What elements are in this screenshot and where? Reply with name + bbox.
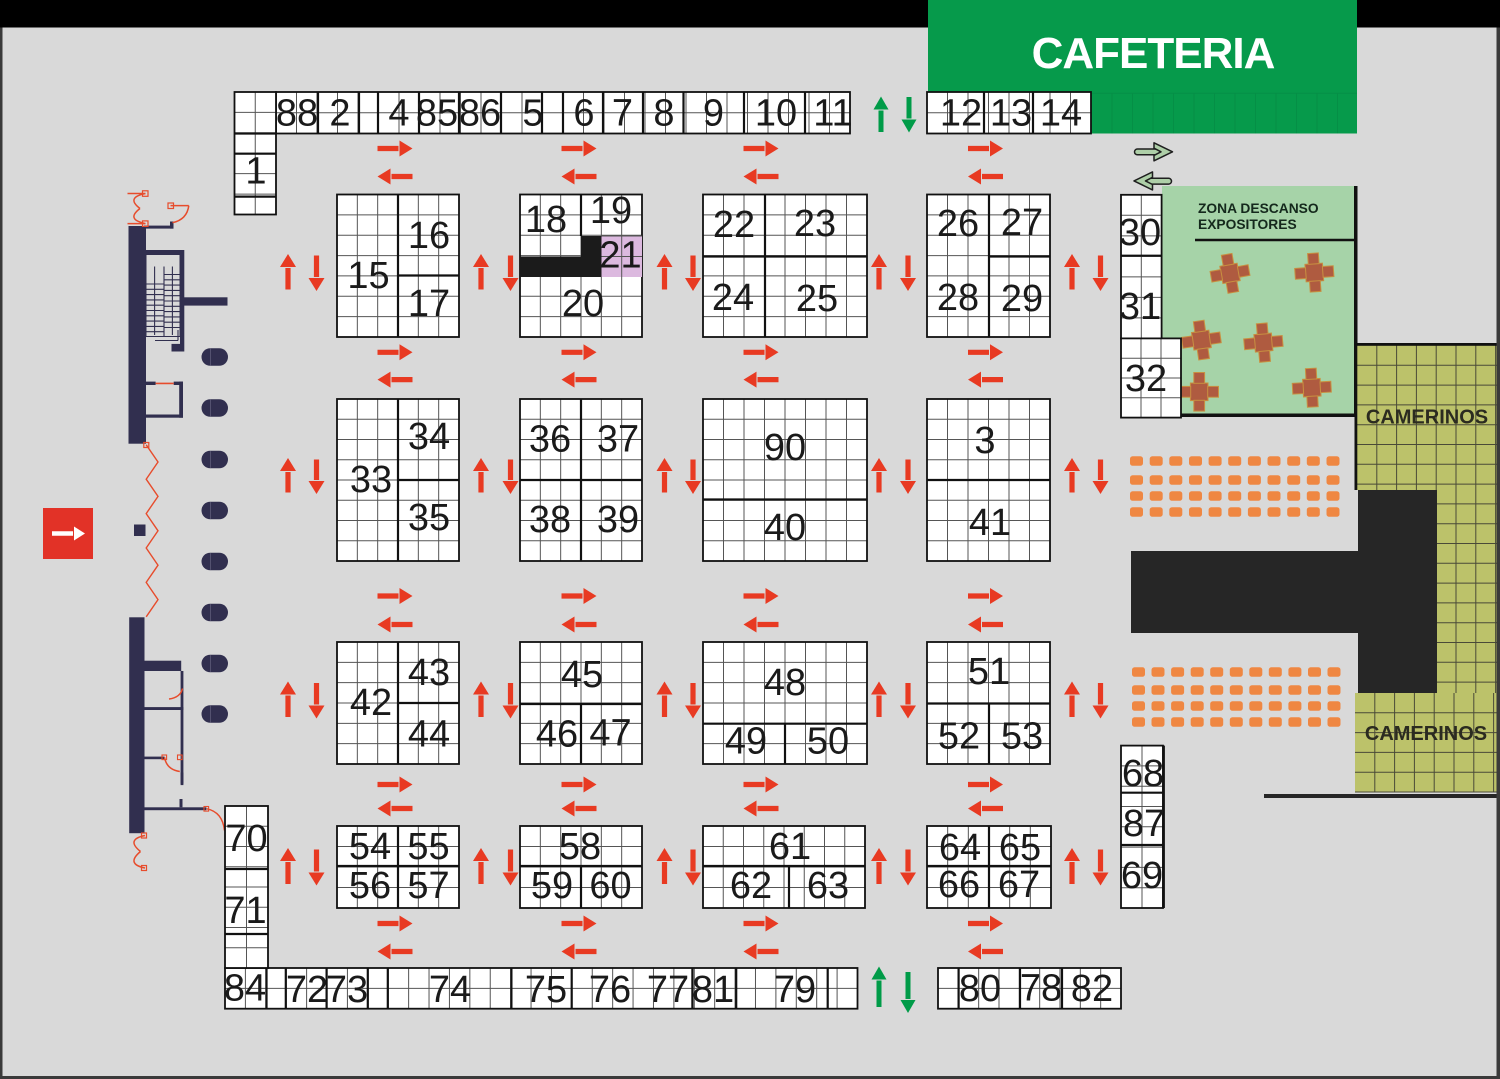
svg-text:EXPOSITORES: EXPOSITORES <box>1198 217 1297 232</box>
svg-text:13: 13 <box>990 93 1032 135</box>
svg-text:48: 48 <box>764 662 806 704</box>
svg-text:80: 80 <box>959 968 1001 1010</box>
svg-text:5: 5 <box>522 93 543 135</box>
svg-text:58: 58 <box>559 826 601 868</box>
svg-text:32: 32 <box>1125 358 1167 400</box>
svg-text:12: 12 <box>940 93 982 135</box>
svg-text:73: 73 <box>326 969 368 1011</box>
svg-text:75: 75 <box>525 969 567 1011</box>
svg-text:71: 71 <box>224 890 266 932</box>
svg-text:46: 46 <box>536 714 578 756</box>
svg-text:22: 22 <box>713 204 755 246</box>
svg-text:38: 38 <box>529 499 571 541</box>
svg-text:54: 54 <box>349 826 391 868</box>
svg-text:43: 43 <box>408 652 450 694</box>
svg-text:57: 57 <box>407 865 449 907</box>
svg-text:7: 7 <box>612 93 633 135</box>
svg-text:11: 11 <box>813 93 852 135</box>
svg-text:14: 14 <box>1040 93 1082 135</box>
svg-text:24: 24 <box>712 277 754 319</box>
svg-text:44: 44 <box>408 714 450 756</box>
svg-text:61: 61 <box>769 826 811 868</box>
svg-text:8: 8 <box>653 93 674 135</box>
svg-text:16: 16 <box>408 215 450 257</box>
svg-text:65: 65 <box>999 827 1041 869</box>
svg-text:55: 55 <box>407 826 449 868</box>
svg-text:CAMERINOS: CAMERINOS <box>1365 723 1487 745</box>
svg-text:69: 69 <box>1121 855 1163 897</box>
svg-text:19: 19 <box>590 190 632 232</box>
svg-text:47: 47 <box>589 713 631 755</box>
svg-text:31: 31 <box>1119 286 1161 328</box>
svg-text:56: 56 <box>349 865 391 907</box>
svg-text:36: 36 <box>529 419 571 461</box>
svg-text:4: 4 <box>388 93 409 135</box>
svg-text:67: 67 <box>998 864 1040 906</box>
svg-text:40: 40 <box>764 507 806 549</box>
svg-text:3: 3 <box>974 420 995 462</box>
svg-text:26: 26 <box>937 203 979 245</box>
svg-text:78: 78 <box>1020 968 1062 1010</box>
svg-text:CAMERINOS: CAMERINOS <box>1366 407 1488 429</box>
svg-text:35: 35 <box>408 497 450 539</box>
svg-text:23: 23 <box>794 203 836 245</box>
svg-text:82: 82 <box>1071 968 1113 1010</box>
svg-text:6: 6 <box>573 93 594 135</box>
svg-text:63: 63 <box>807 865 849 907</box>
svg-text:34: 34 <box>408 416 450 458</box>
svg-text:81: 81 <box>692 969 734 1011</box>
svg-text:29: 29 <box>1001 278 1043 320</box>
svg-text:17: 17 <box>408 283 450 325</box>
svg-text:15: 15 <box>347 255 389 297</box>
svg-text:90: 90 <box>764 427 806 469</box>
svg-text:76: 76 <box>589 969 631 1011</box>
svg-text:77: 77 <box>647 969 689 1011</box>
svg-text:18: 18 <box>525 199 567 241</box>
svg-text:37: 37 <box>597 419 639 461</box>
svg-text:74: 74 <box>429 969 471 1011</box>
svg-text:30: 30 <box>1119 212 1161 254</box>
svg-text:72: 72 <box>286 969 328 1011</box>
svg-text:86: 86 <box>459 93 501 135</box>
svg-text:59: 59 <box>531 865 573 907</box>
svg-text:ZONA DESCANSO: ZONA DESCANSO <box>1198 201 1319 216</box>
svg-text:85: 85 <box>416 93 458 135</box>
svg-text:28: 28 <box>937 277 979 319</box>
svg-text:39: 39 <box>597 499 639 541</box>
svg-text:27: 27 <box>1001 202 1043 244</box>
svg-text:42: 42 <box>350 682 392 724</box>
svg-text:10: 10 <box>755 93 797 135</box>
svg-text:88: 88 <box>276 93 318 135</box>
svg-text:53: 53 <box>1001 716 1043 758</box>
svg-text:25: 25 <box>796 278 838 320</box>
svg-text:45: 45 <box>561 654 603 696</box>
svg-text:51: 51 <box>968 651 1010 693</box>
svg-text:9: 9 <box>703 93 724 135</box>
svg-text:49: 49 <box>725 721 767 763</box>
svg-text:66: 66 <box>938 864 980 906</box>
svg-text:52: 52 <box>938 716 980 758</box>
svg-text:79: 79 <box>774 969 816 1011</box>
svg-text:87: 87 <box>1123 803 1165 845</box>
svg-text:CAFETERIA: CAFETERIA <box>1032 29 1275 78</box>
svg-text:68: 68 <box>1122 753 1164 795</box>
svg-text:2: 2 <box>329 93 350 135</box>
svg-text:20: 20 <box>562 283 604 325</box>
svg-text:1: 1 <box>245 151 266 193</box>
svg-text:41: 41 <box>969 502 1011 544</box>
svg-text:62: 62 <box>730 865 772 907</box>
svg-text:21: 21 <box>599 235 641 277</box>
svg-text:64: 64 <box>939 827 981 869</box>
svg-text:84: 84 <box>224 968 266 1010</box>
svg-text:70: 70 <box>225 818 267 860</box>
svg-text:50: 50 <box>807 721 849 763</box>
svg-text:60: 60 <box>589 865 631 907</box>
svg-text:33: 33 <box>350 459 392 501</box>
